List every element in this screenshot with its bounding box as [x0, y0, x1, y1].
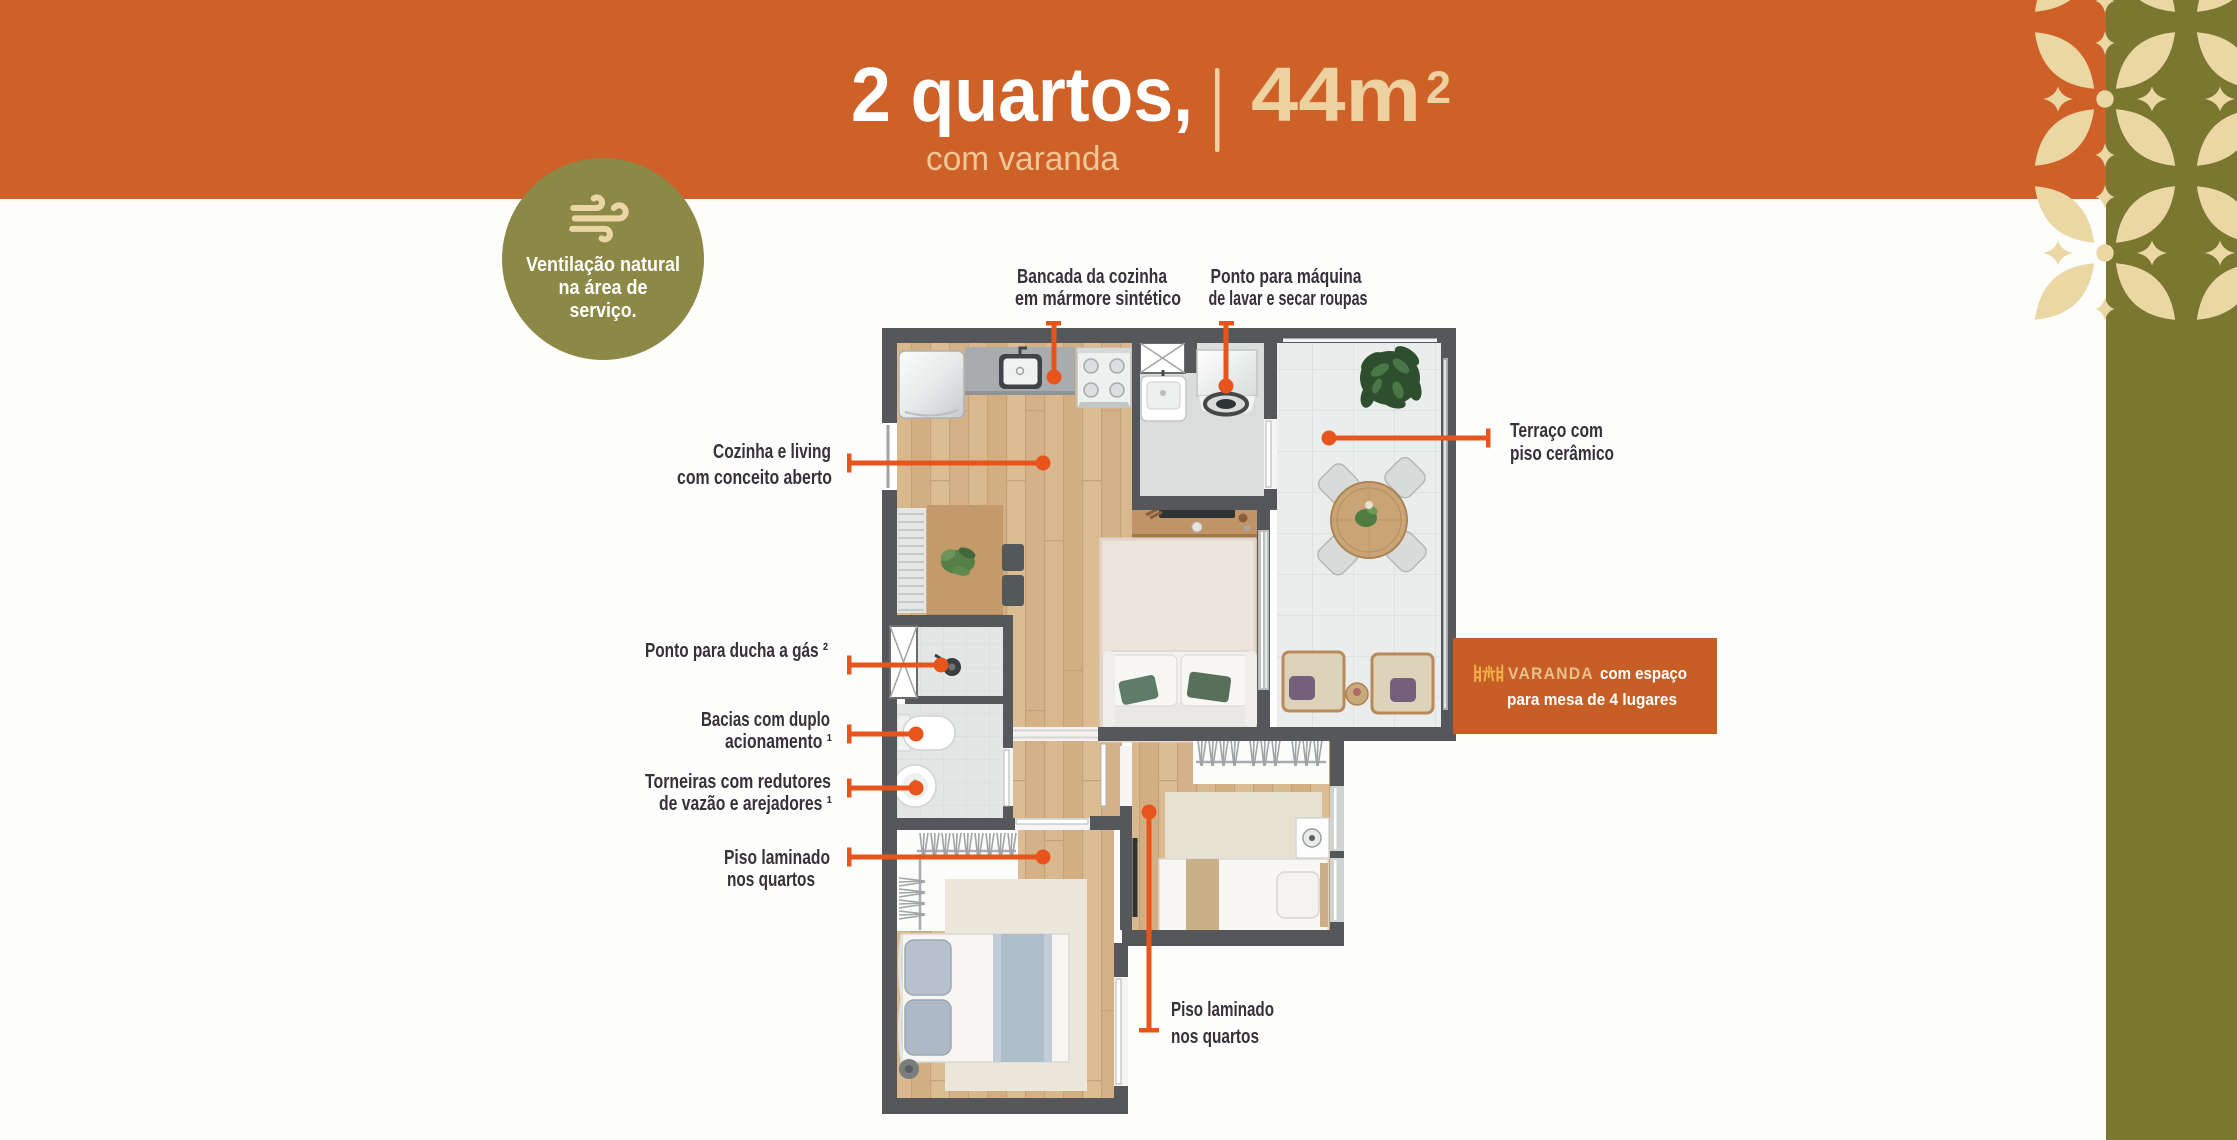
svg-text:Piso laminado: Piso laminado	[1171, 999, 1274, 1021]
svg-text:Bacias com duplo: Bacias com duplo	[701, 709, 830, 731]
svg-text:Piso laminado: Piso laminado	[724, 847, 830, 869]
svg-text:de vazão e arejadores ¹: de vazão e arejadores ¹	[659, 793, 832, 815]
svg-text:Cozinha e living: Cozinha e living	[713, 441, 831, 463]
svg-text:de lavar e secar roupas: de lavar e secar roupas	[1209, 288, 1368, 310]
svg-text:Bancada da cozinha: Bancada da cozinha	[1017, 266, 1168, 288]
svg-text:VARANDA: VARANDA	[1508, 664, 1594, 683]
svg-text:Ventilação natural: Ventilação natural	[526, 254, 680, 276]
svg-text:nos quartos: nos quartos	[1171, 1026, 1259, 1048]
svg-text:acionamento ¹: acionamento ¹	[725, 731, 832, 753]
svg-text:2: 2	[1426, 62, 1451, 113]
svg-text:com espaço: com espaço	[1600, 664, 1687, 683]
svg-text:Torneiras com redutores: Torneiras com redutores	[645, 771, 831, 793]
svg-text:com conceito aberto: com conceito aberto	[677, 467, 832, 489]
svg-text:Ponto para máquina: Ponto para máquina	[1211, 266, 1363, 288]
svg-text:para mesa de 4 lugares: para mesa de 4 lugares	[1507, 690, 1677, 709]
svg-text:nos quartos: nos quartos	[727, 869, 815, 891]
svg-text:serviço.: serviço.	[570, 300, 637, 322]
svg-text:em mármore sintético: em mármore sintético	[1015, 288, 1181, 310]
svg-text:2 quartos,: 2 quartos,	[851, 52, 1193, 138]
svg-text:piso cerâmico: piso cerâmico	[1510, 443, 1614, 465]
svg-text:44m: 44m	[1251, 52, 1421, 138]
svg-text:Ponto para ducha a gás ²: Ponto para ducha a gás ²	[645, 640, 828, 662]
svg-text:na área de: na área de	[559, 277, 648, 299]
svg-text:Terraço com: Terraço com	[1510, 420, 1603, 442]
svg-text:com varanda: com varanda	[926, 140, 1119, 178]
